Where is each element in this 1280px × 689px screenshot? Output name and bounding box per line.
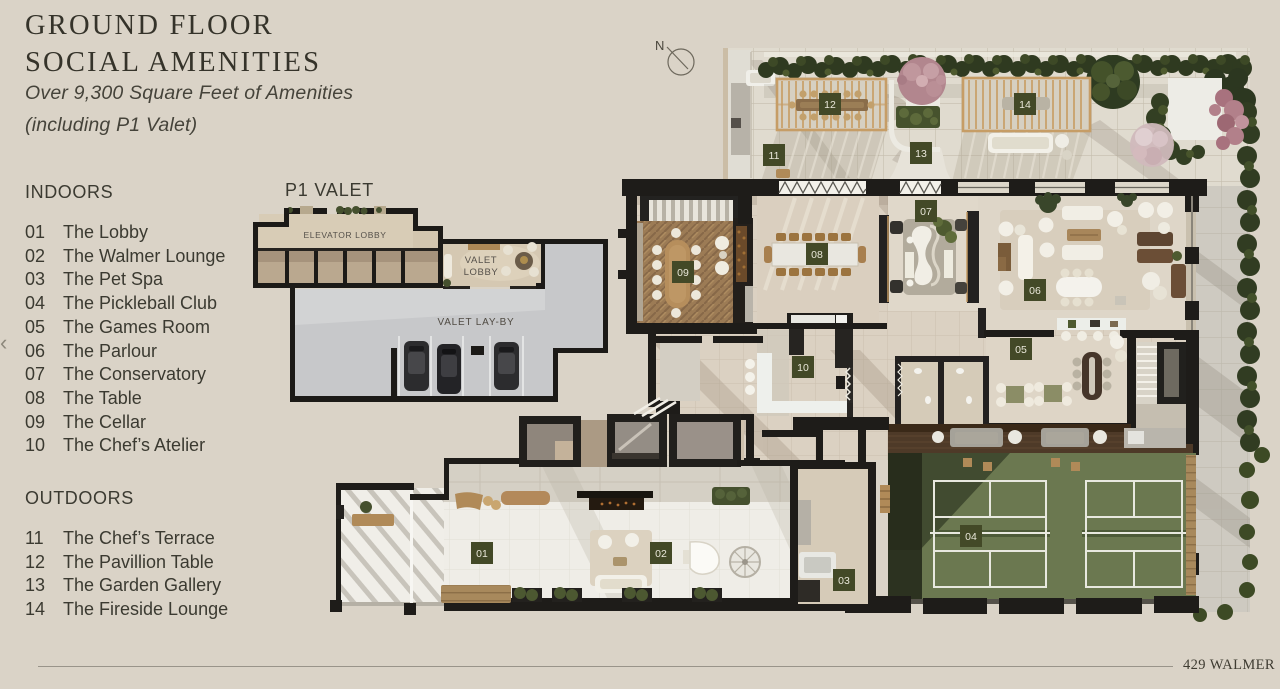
svg-text:ELEVATOR LOBBY: ELEVATOR LOBBY	[303, 230, 386, 240]
svg-text:03: 03	[838, 575, 850, 587]
svg-text:LOBBY: LOBBY	[464, 267, 499, 278]
svg-text:09: 09	[677, 267, 689, 279]
svg-text:02: 02	[655, 548, 667, 560]
svg-text:07: 07	[920, 206, 932, 218]
svg-text:VALET LAY-BY: VALET LAY-BY	[437, 317, 514, 328]
svg-text:N: N	[655, 38, 664, 53]
svg-text:VALET: VALET	[465, 255, 497, 266]
svg-text:14: 14	[1019, 99, 1031, 111]
svg-text:13: 13	[915, 148, 927, 160]
svg-text:01: 01	[476, 548, 488, 560]
svg-text:12: 12	[824, 99, 836, 111]
svg-text:04: 04	[965, 531, 977, 543]
svg-text:05: 05	[1015, 344, 1027, 356]
svg-text:11: 11	[769, 150, 780, 162]
svg-text:08: 08	[811, 249, 823, 261]
svg-text:10: 10	[797, 362, 809, 374]
svg-text:06: 06	[1029, 285, 1041, 297]
